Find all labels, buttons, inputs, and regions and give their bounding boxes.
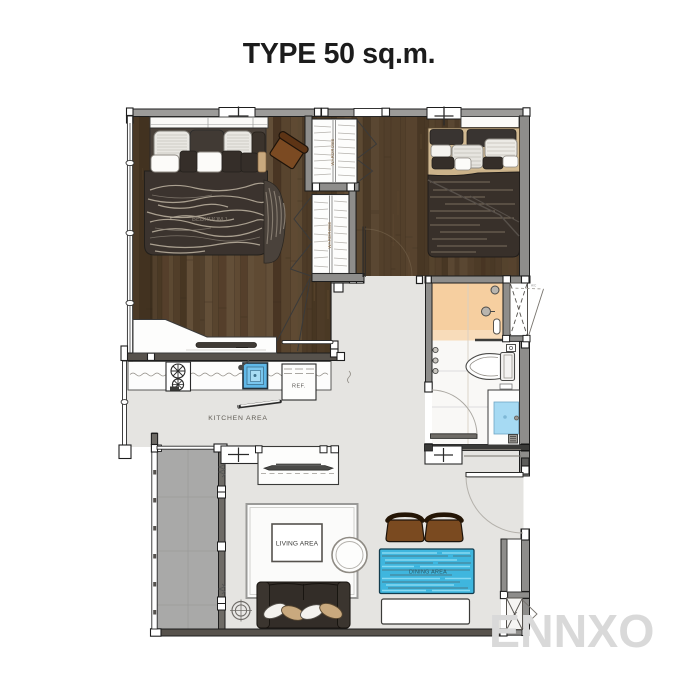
svg-text:KITCHEN AREA: KITCHEN AREA [208,415,267,422]
svg-text:WARDROBE: WARDROBE [330,139,335,166]
svg-text:ENNXO: ENNXO [489,605,654,657]
svg-text:A/C: A/C [531,284,537,288]
svg-text:REF.: REF. [292,384,306,390]
svg-text:LIVING AREA: LIVING AREA [276,541,319,548]
svg-text:WARDROBE: WARDROBE [327,222,332,249]
svg-text:BEDROOM 1: BEDROOM 1 [192,217,229,223]
svg-text:DINING AREA: DINING AREA [409,570,447,576]
svg-text:TYPE 50 sq.m.: TYPE 50 sq.m. [243,38,436,70]
